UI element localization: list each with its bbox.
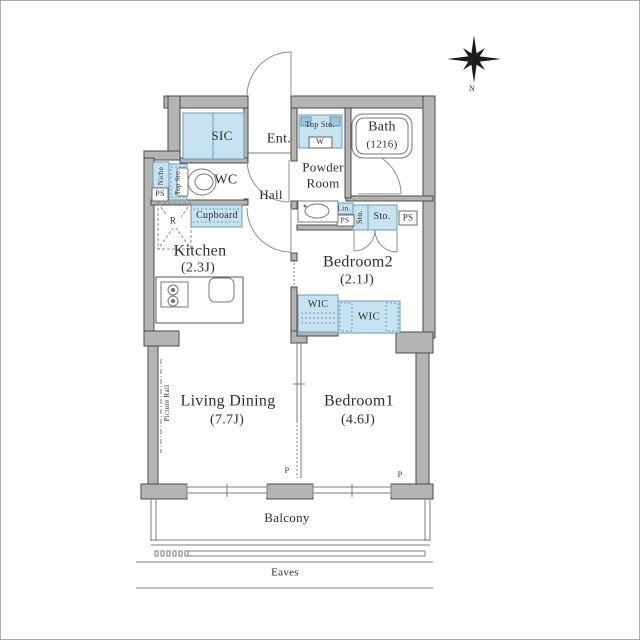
wall-left-upper: [168, 96, 180, 156]
vanity-faucet: [304, 205, 307, 208]
fixture-label-cupboard: Cupboard: [196, 210, 238, 222]
entrance-door: [247, 52, 291, 96]
vanity-basin: [305, 204, 329, 218]
fixture-label-niche: Niche: [157, 167, 165, 185]
fixture-label-top-storage: Top Sto.: [174, 169, 182, 195]
room-label-entrance: Ent.: [267, 132, 291, 149]
wall-left-lower: [148, 346, 158, 493]
fixture-label-picture-rail: Picture Rail: [163, 385, 171, 422]
compass-icon: [447, 35, 501, 83]
room-label-kitchen: Kitchen: [174, 241, 227, 260]
balcony-partition-line: [187, 551, 425, 556]
room-label-living-dining: Living Dining: [180, 391, 275, 410]
balcony-partition-marks: [155, 551, 188, 556]
toilet-seat: [195, 174, 213, 190]
room-label-bath: Bath: [368, 120, 396, 137]
fixture-label-ps-3: PS: [403, 213, 414, 224]
fixture-label-refrigerator: R: [170, 216, 176, 227]
room-label-wc: WC: [214, 173, 237, 190]
floor-plan-drawing: [1, 1, 640, 640]
room-label-bedroom1: Bedroom1: [324, 391, 394, 410]
room-size-living-dining: (7.7J): [210, 413, 244, 430]
wall-hall-powder-upper: [291, 108, 297, 161]
wall-wic-bottom: [297, 332, 338, 336]
wall-right-lower: [416, 353, 429, 493]
fixture-label-top-storage-washer: Top Sto.: [305, 120, 334, 130]
storage-double-doors: [354, 230, 397, 252]
fixture-label-linen: Lin.: [337, 204, 351, 213]
kitchen-sink: [209, 278, 234, 302]
room-label-sic: SIC: [211, 128, 232, 144]
wall-top-right: [291, 96, 433, 108]
stove-burner-1-dot: [172, 289, 175, 292]
room-label-hall: Hall: [259, 187, 283, 203]
wall-bottom-left: [141, 484, 187, 499]
wall-bath-bottom: [346, 196, 433, 201]
window-bedroom1: [313, 484, 391, 497]
floor-plan: SIC Ent. WC Hall Powder Room Bath (1216)…: [0, 0, 640, 640]
room-size-bedroom2: (2.1J): [340, 273, 374, 290]
room-label-powder-room: Powder Room: [302, 159, 344, 190]
divider-wall-line: [293, 343, 305, 421]
wall-hall-bedroom2-b: [291, 287, 297, 333]
fixture-label-ps-2: PS: [341, 216, 350, 225]
wall-bottom-right: [391, 484, 433, 499]
fixture-label-pillar-1: P: [285, 466, 290, 476]
window-living: [187, 484, 267, 497]
fixture-label-ps-1: PS: [155, 189, 165, 199]
wall-hall-powder-chunk: [291, 201, 297, 209]
compass-north-label: N: [469, 84, 475, 94]
fixture-label-wic-right: WIC: [358, 310, 380, 323]
room-size-bath: (1216): [366, 138, 397, 151]
fixture-label-storage-large: Sto.: [373, 211, 390, 223]
stove-burner-2-dot: [172, 300, 175, 303]
wall-powder-bath: [345, 108, 351, 198]
room-label-eaves: Eaves: [271, 566, 299, 579]
room-label-balcony: Balcony: [264, 510, 309, 526]
room-size-bedroom1: (4.6J): [341, 413, 375, 430]
fixture-label-pillar-2: P: [398, 470, 403, 480]
wall-right-upper: [423, 96, 435, 338]
room-label-bedroom2: Bedroom2: [323, 252, 393, 271]
wall-sic-right-upper: [244, 108, 248, 161]
fixture-label-wic-left: WIC: [308, 299, 328, 311]
wall-right-notch: [396, 332, 433, 353]
wall-left-pier: [144, 331, 179, 346]
fixture-label-storage-small: Sto.: [355, 210, 365, 224]
wall-bottom-center: [267, 484, 313, 499]
fixture-label-washer: W: [316, 137, 324, 147]
hall-kitchen-door: [247, 208, 291, 252]
room-size-kitchen: (2.3J): [181, 261, 215, 278]
